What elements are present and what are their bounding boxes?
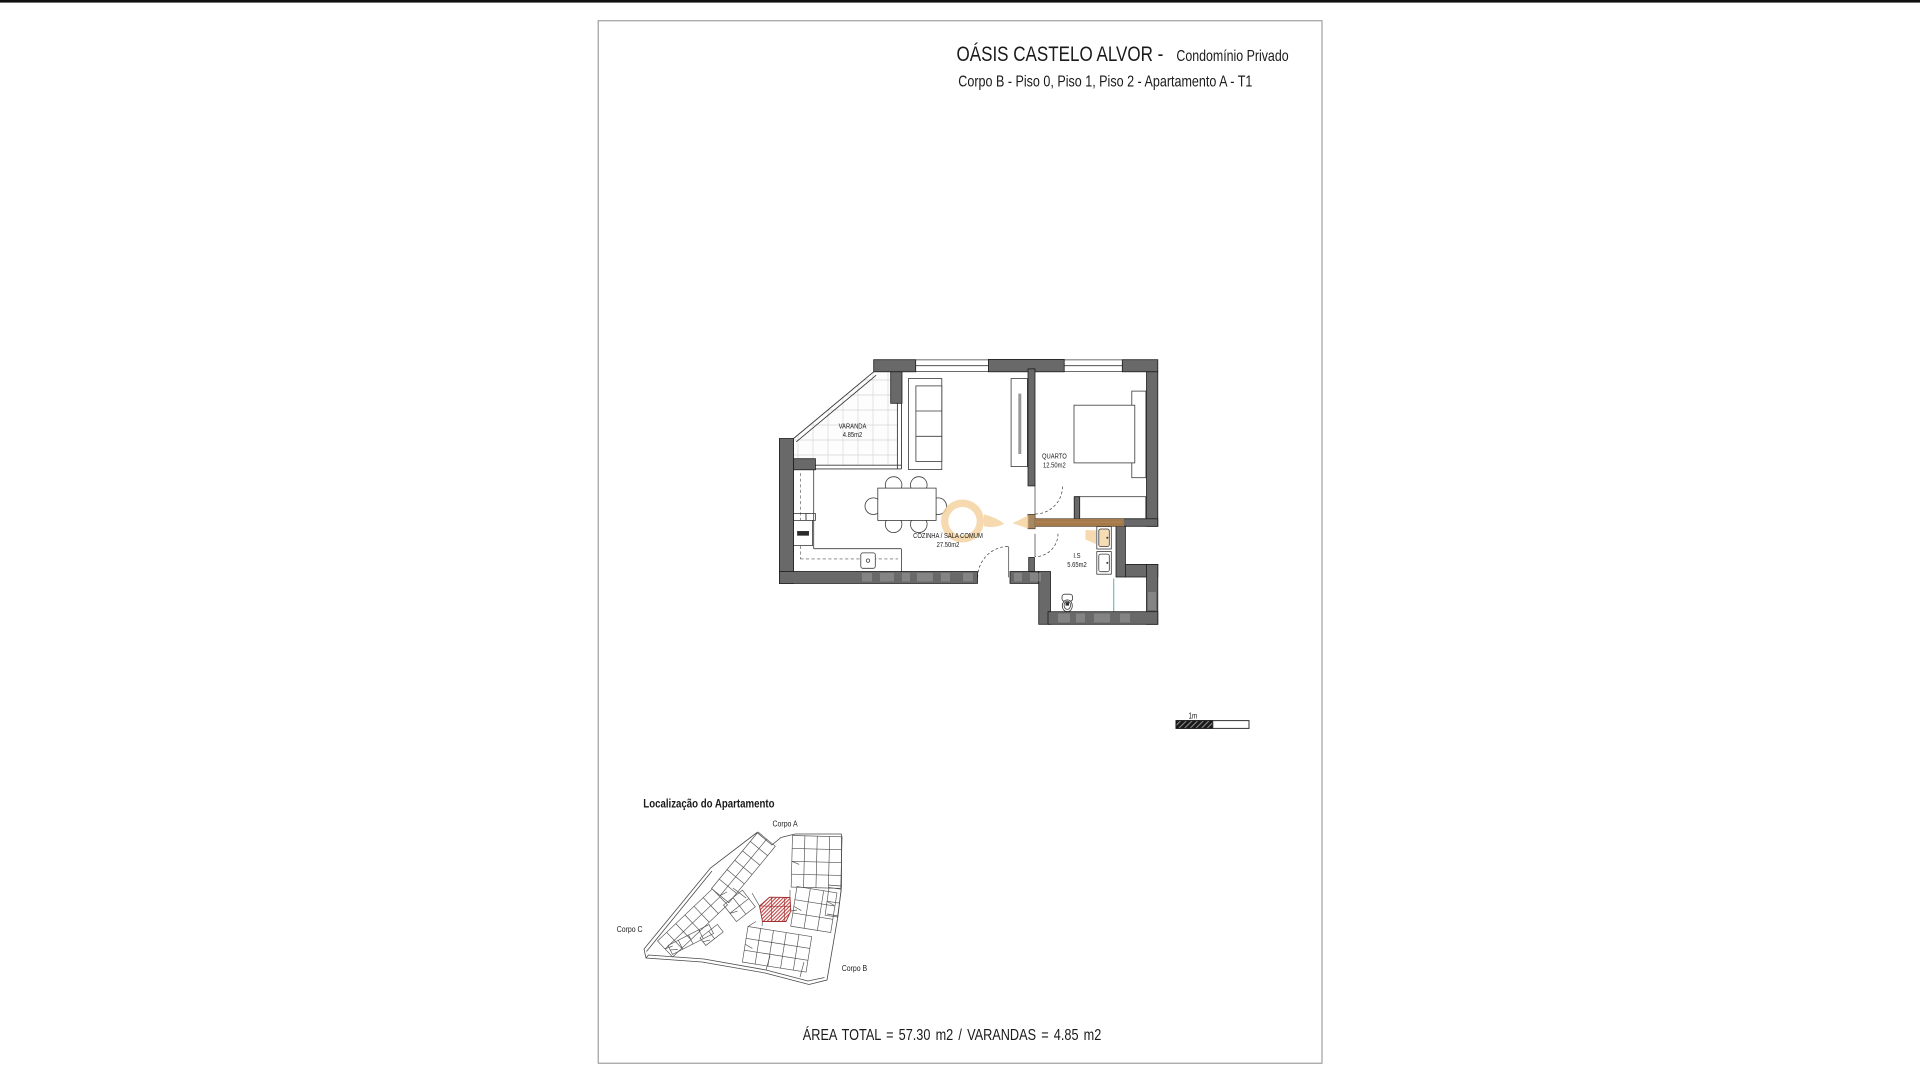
svg-text:4.85m2: 4.85m2 — [843, 432, 863, 440]
svg-text:27.50m2: 27.50m2 — [937, 541, 960, 549]
svg-text:Corpo C: Corpo C — [617, 924, 643, 934]
svg-text:COZINHA / SALA COMUM: COZINHA / SALA COMUM — [913, 532, 983, 540]
svg-text:Localização do Apartamento: Localização do Apartamento — [643, 798, 774, 811]
svg-text:OÁSIS CASTELO ALVOR -: OÁSIS CASTELO ALVOR - — [957, 43, 1164, 66]
svg-text:5.65m2: 5.65m2 — [1067, 561, 1087, 569]
svg-text:Corpo B: Corpo B — [842, 963, 867, 973]
svg-text:QUARTO: QUARTO — [1042, 453, 1067, 461]
svg-text:ÁREA TOTAL = 57.30 m2 / VA: ÁREA TOTAL = 57.30 m2 / VARANDAS = 4.85 … — [803, 1026, 1102, 1045]
svg-text:Corpo A: Corpo A — [773, 819, 799, 829]
svg-text:I.S: I.S — [1073, 552, 1081, 560]
svg-text:VARANDA: VARANDA — [839, 423, 867, 431]
svg-text:Condomínio Privado: Condomínio Privado — [1176, 47, 1288, 65]
svg-text:Corpo B - Piso 0, Piso 1, Piso: Corpo B - Piso 0, Piso 1, Piso 2 - Apart… — [958, 73, 1252, 91]
svg-text:1m: 1m — [1188, 711, 1197, 721]
svg-text:12.50m2: 12.50m2 — [1043, 462, 1066, 470]
